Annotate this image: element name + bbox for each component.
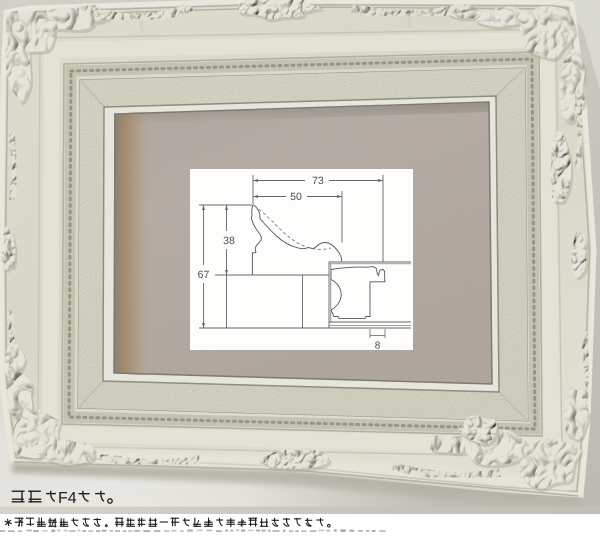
svg-text:F4: F4 [58, 490, 77, 507]
svg-text:73: 73 [312, 175, 324, 187]
svg-text:50: 50 [290, 191, 302, 203]
svg-text:67: 67 [198, 269, 210, 281]
svg-text:8: 8 [375, 341, 381, 352]
svg-text:38: 38 [223, 235, 235, 247]
